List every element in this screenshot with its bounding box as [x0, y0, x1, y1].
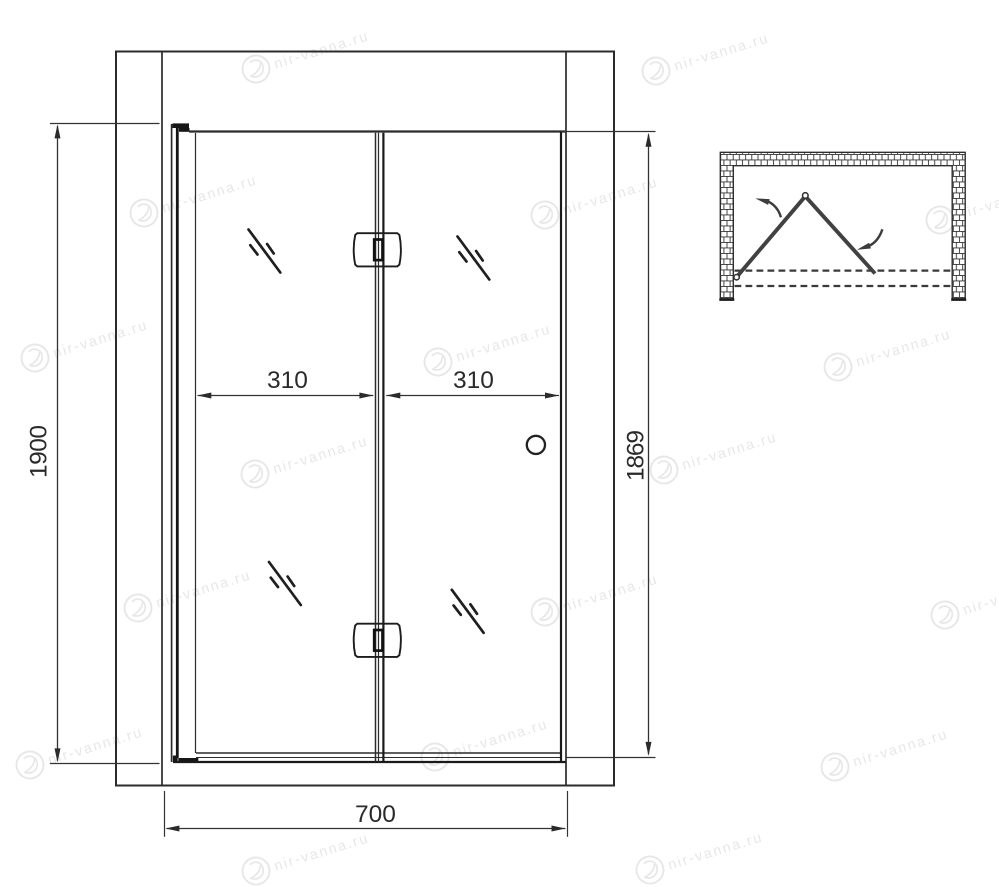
svg-text:1869: 1869 — [623, 430, 650, 481]
svg-text:1900: 1900 — [26, 425, 53, 478]
svg-text:310: 310 — [267, 367, 308, 394]
svg-text:310: 310 — [453, 367, 494, 394]
svg-text:700: 700 — [355, 801, 396, 828]
